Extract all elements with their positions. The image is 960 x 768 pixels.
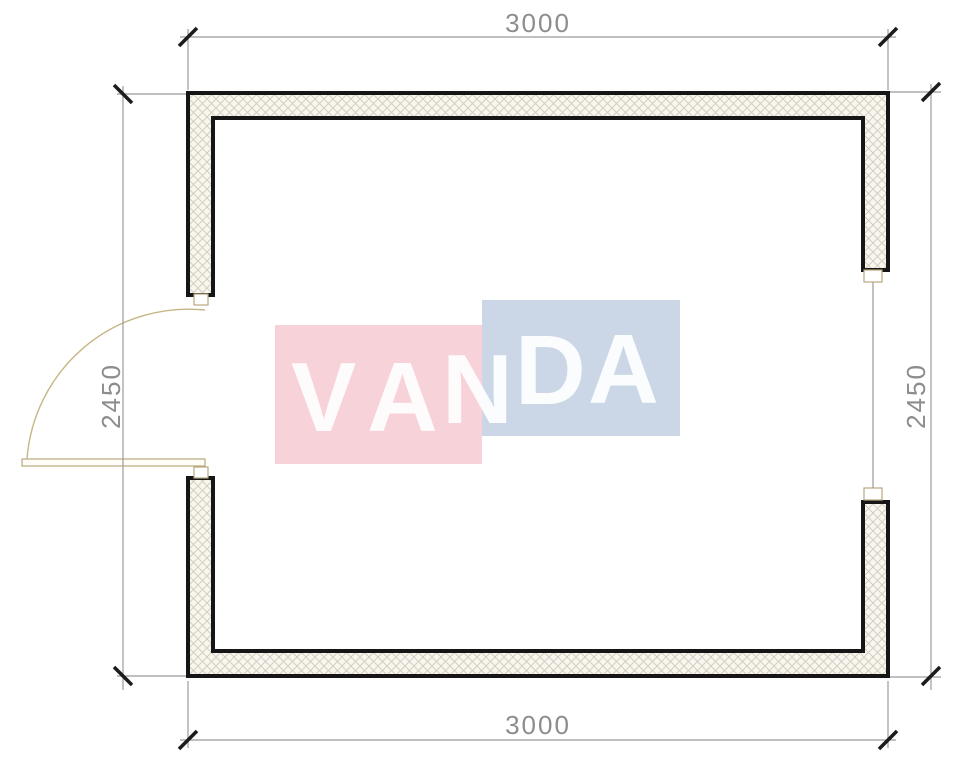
door-jamb-bottom	[194, 467, 208, 478]
window-opening	[864, 270, 882, 500]
dimension-bottom-label: 3000	[493, 712, 583, 738]
dimension-left-label: 2450	[98, 351, 124, 441]
watermark-letter: A	[367, 348, 438, 446]
watermark-letter: D	[515, 321, 586, 419]
door-leaf	[22, 459, 205, 466]
dimension-top-label: 3000	[493, 10, 583, 36]
floor-plan-canvas: V A N D A 3000 3000 2450 2450	[0, 0, 960, 768]
wall-bottom-section	[188, 478, 888, 676]
wall-top-section	[188, 93, 888, 295]
opening-jamb-bottom	[864, 488, 882, 500]
watermark-letter: V	[291, 348, 356, 446]
door-jamb-top	[194, 294, 208, 305]
opening-jamb-top	[864, 270, 882, 282]
dimension-right-label: 2450	[903, 351, 929, 441]
watermark-letter: A	[588, 320, 659, 418]
watermark-letter: N	[442, 340, 513, 438]
